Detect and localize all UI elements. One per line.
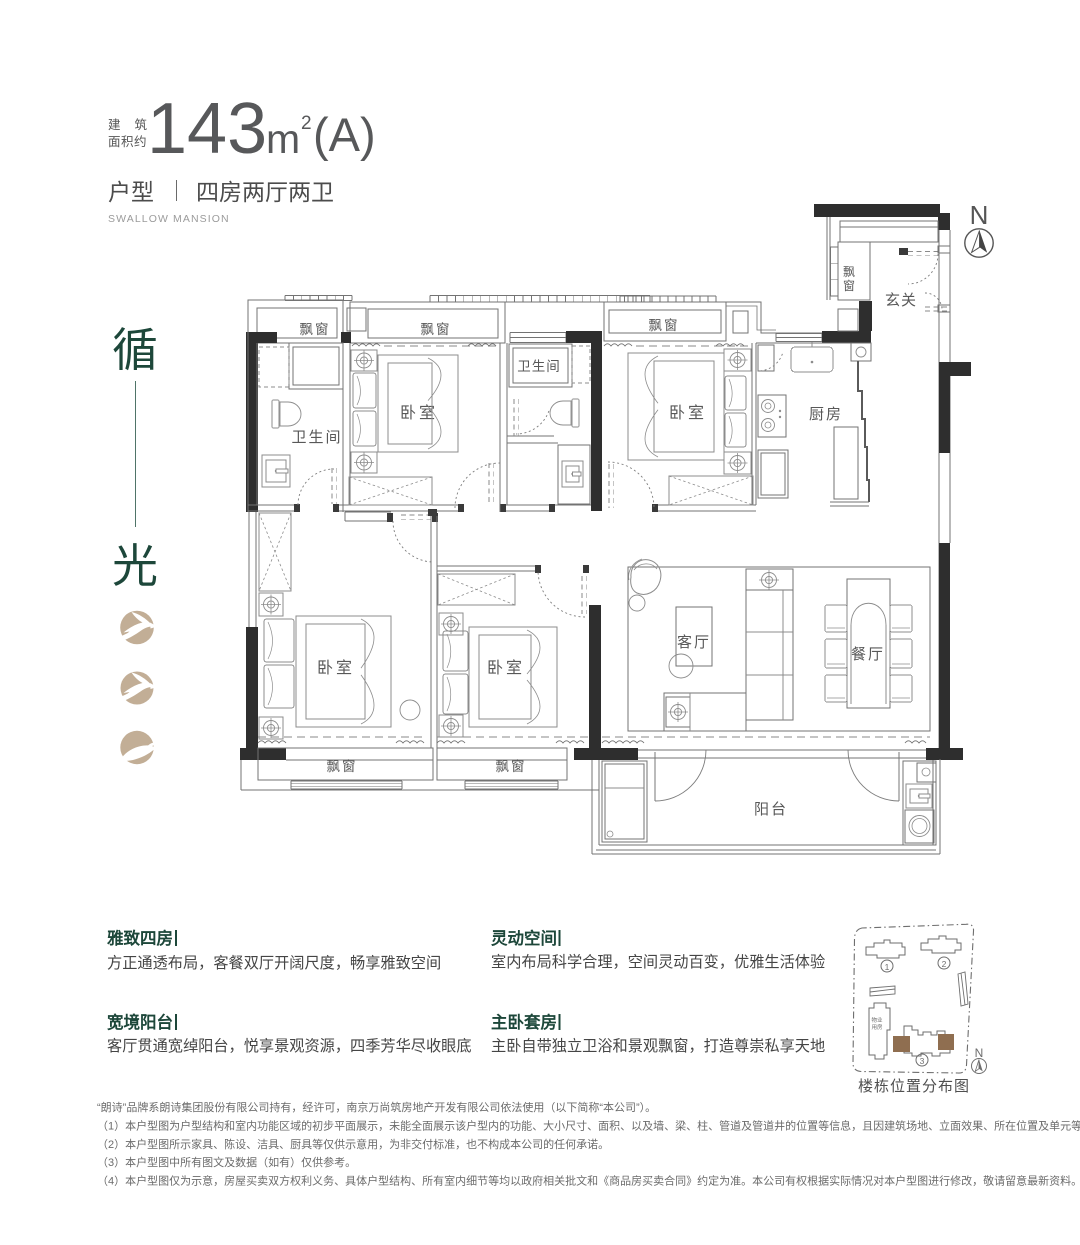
svg-text:四房两厅两卫: 四房两厅两卫 — [196, 179, 334, 205]
svg-text:客厅贯通宽绰阳台，悦享景观资源，四季芳华尽收眼底: 客厅贯通宽绰阳台，悦享景观资源，四季芳华尽收眼底 — [107, 1038, 472, 1055]
svg-text:（2）本户型图所示家具、陈设、洁具、厨具等仅供示意用，为非交: （2）本户型图所示家具、陈设、洁具、厨具等仅供示意用，为非交付标准，也不构成本公… — [97, 1137, 609, 1151]
svg-text:卫生间: 卫生间 — [291, 429, 342, 446]
svg-text:灵动空间: 灵动空间 — [491, 928, 557, 948]
svg-text:3: 3 — [920, 1056, 925, 1066]
svg-text:m: m — [266, 116, 300, 162]
svg-text:飘窗: 飘窗 — [327, 758, 358, 774]
svg-text:卫生间: 卫生间 — [517, 359, 561, 374]
svg-text:厨房: 厨房 — [809, 406, 843, 423]
svg-text:卧室: 卧室 — [487, 659, 525, 677]
svg-text:雅致四房: 雅致四房 — [106, 928, 173, 948]
svg-text:建 筑: 建 筑 — [108, 117, 150, 132]
svg-text:宽境阳台: 宽境阳台 — [107, 1012, 173, 1032]
svg-text:餐厅: 餐厅 — [851, 646, 885, 663]
svg-text:方正通透布局，客餐双厅开阔尺度，畅享雅致空间: 方正通透布局，客餐双厅开阔尺度，畅享雅致空间 — [107, 955, 441, 972]
svg-text:飘窗: 飘窗 — [300, 321, 331, 337]
svg-text:“朗诗”品牌系朗诗集团股份有限公司持有，经许可，南京万尚筑房: “朗诗”品牌系朗诗集团股份有限公司持有，经许可，南京万尚筑房地产开发有限公司依法… — [97, 1100, 656, 1114]
svg-text:楼栋位置分布图: 楼栋位置分布图 — [858, 1077, 970, 1095]
svg-text:光: 光 — [112, 540, 158, 592]
svg-text:2: 2 — [301, 113, 312, 134]
svg-text:卧室: 卧室 — [317, 659, 355, 677]
svg-text:面积约: 面积约 — [108, 134, 147, 149]
svg-text:（4）本户型图仅为示意，房屋买卖双方权利义务、具体户型结构、: （4）本户型图仅为示意，房屋买卖双方权利义务、具体户型结构、所有室内细节等均以政… — [97, 1174, 1080, 1188]
svg-text:用房: 用房 — [871, 1023, 883, 1031]
svg-text:循: 循 — [112, 324, 158, 376]
svg-text:主卧自带独立卫浴和景观飘窗，打造尊崇私享天地: 主卧自带独立卫浴和景观飘窗，打造尊崇私享天地 — [491, 1037, 825, 1055]
svg-text:飘: 飘 — [843, 265, 855, 279]
svg-text:飘窗: 飘窗 — [421, 321, 452, 337]
svg-text:室内布局科学合理，空间灵动百变，优雅生活体验: 室内布局科学合理，空间灵动百变，优雅生活体验 — [491, 954, 825, 971]
svg-text:飘窗: 飘窗 — [649, 317, 680, 333]
svg-text:户型: 户型 — [108, 179, 154, 205]
svg-text:（3）本户型图中所有图文及数据（如有）仅供参考。: （3）本户型图中所有图文及数据（如有）仅供参考。 — [97, 1155, 356, 1169]
svg-text:2: 2 — [942, 959, 947, 969]
svg-text:143: 143 — [147, 89, 267, 169]
svg-text:（1）本户型图为户型结构和室内功能区域的初步平面展示，未能全: （1）本户型图为户型结构和室内功能区域的初步平面展示，未能全面展示该户型内的功能… — [97, 1119, 1080, 1133]
svg-text:客厅: 客厅 — [677, 634, 711, 651]
svg-text:SWALLOW MANSION: SWALLOW MANSION — [108, 213, 230, 225]
svg-text:卧室: 卧室 — [669, 404, 707, 422]
svg-text:N: N — [975, 1046, 984, 1060]
svg-text:阳台: 阳台 — [754, 801, 788, 818]
svg-text:飘窗: 飘窗 — [496, 758, 527, 774]
svg-text:窗: 窗 — [843, 279, 855, 293]
svg-text:(A): (A) — [313, 108, 376, 161]
svg-text:N: N — [970, 200, 989, 230]
svg-text:主卧套房: 主卧套房 — [491, 1012, 557, 1032]
svg-text:物业: 物业 — [871, 1016, 883, 1024]
svg-text:1: 1 — [885, 962, 890, 972]
svg-text:玄关: 玄关 — [885, 292, 917, 309]
